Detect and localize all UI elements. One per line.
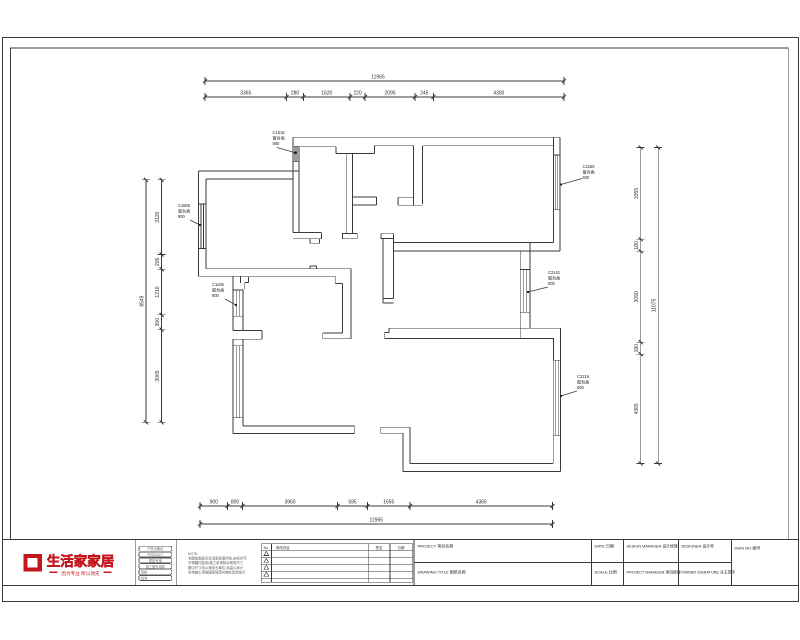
svg-text:不得翻印复制,施工前请核对现场尺寸: 不得翻印复制,施工前请核对现场尺寸 [188,560,244,565]
svg-text:1655: 1655 [383,500,394,506]
svg-text:DRAWING TITLE 图纸名称: DRAWING TITLE 图纸名称 [418,569,466,575]
svg-text:3355: 3355 [634,188,640,199]
svg-text:900: 900 [212,293,220,298]
svg-text:窗台高: 窗台高 [178,208,190,214]
svg-text:DESIGN MANAGER 设计经理: DESIGN MANAGER 设计经理 [627,544,678,549]
svg-text:本图纸版权归生活家家居所有,未经许可: 本图纸版权归生活家家居所有,未经许可 [188,556,247,561]
svg-text:PROJECT 项目名称: PROJECT 项目名称 [418,543,454,549]
svg-text:3365: 3365 [240,91,251,97]
svg-text:600: 600 [577,385,585,390]
svg-text:800: 800 [231,500,240,506]
svg-text:1620: 1620 [321,91,332,97]
svg-text:窗台高: 窗台高 [577,379,589,385]
svg-text:No.: No. [264,546,269,550]
svg-text:OWNER SIGNATURE 业主签字: OWNER SIGNATURE 业主签字 [682,570,736,575]
svg-text:595: 595 [348,500,357,506]
svg-text:C1106: C1106 [212,282,224,287]
svg-text:施工图专用章: 施工图专用章 [146,564,166,569]
svg-text:3960: 3960 [284,500,295,506]
svg-text:C1516: C1516 [273,130,286,135]
svg-text:900: 900 [273,141,281,146]
svg-text:205: 205 [155,257,161,266]
svg-text:4300: 4300 [493,91,504,97]
svg-text:日期: 日期 [398,545,405,550]
svg-text:11075: 11075 [652,299,658,313]
svg-text:1210: 1210 [155,286,161,297]
svg-text:280: 280 [291,91,300,97]
svg-text:3050: 3050 [634,291,640,302]
svg-text:因为专业 所以领先: 因为专业 所以领先 [61,570,99,577]
svg-text:产品合格证: 产品合格证 [147,546,164,551]
svg-text:600: 600 [583,175,591,180]
svg-text:窗台高: 窗台高 [212,287,224,293]
svg-text:SCALE 比例: SCALE 比例 [595,569,617,575]
svg-text:生活家家居: 生活家家居 [47,553,115,569]
svg-text:DWG.NO 图号: DWG.NO 图号 [735,545,761,551]
svg-text:180: 180 [634,344,640,353]
svg-text:900: 900 [178,214,186,219]
svg-text:C2216: C2216 [577,374,590,379]
svg-text:8549: 8549 [140,295,146,306]
svg-text:11965: 11965 [371,75,385,81]
svg-text:NOTE:: NOTE: [188,552,198,556]
svg-text:图中尺寸均以毫米为单位,标高以米计: 图中尺寸均以毫米为单位,标高以米计 [188,565,244,570]
svg-text:3120: 3120 [155,211,161,222]
svg-text:180: 180 [634,241,640,250]
svg-text:245: 245 [420,91,429,97]
svg-text:窗台高: 窗台高 [583,169,595,175]
svg-text:DESIGNER 设计师: DESIGNER 设计师 [682,544,714,549]
svg-text:DATE 日期: DATE 日期 [595,543,614,549]
svg-text:220: 220 [353,91,362,97]
svg-text:水电施工须按国家规范与物业配合执行: 水电施工须按国家规范与物业配合执行 [188,570,246,575]
svg-text:质检专用: 质检专用 [149,558,162,563]
svg-text:600: 600 [548,281,556,286]
svg-text:签名: 签名 [376,545,383,550]
svg-text:11965: 11965 [369,518,383,524]
svg-text:3065: 3065 [155,370,161,381]
svg-text:900: 900 [210,500,219,506]
svg-text:300: 300 [155,318,161,327]
svg-text:窗台高: 窗台高 [548,275,560,281]
svg-text:修改内容: 修改内容 [276,545,290,550]
svg-text:PRODUCT: PRODUCT [147,553,163,557]
svg-text:C2155: C2155 [583,164,596,169]
svg-text:PROJECT MANAGER 项目经理: PROJECT MANAGER 项目经理 [627,570,681,575]
svg-text:批准: 批准 [141,575,148,580]
svg-text:4365: 4365 [476,500,487,506]
svg-text:C2141: C2141 [548,270,561,275]
svg-text:4365: 4365 [634,403,640,414]
svg-text:C1806: C1806 [178,203,191,208]
svg-text:审核: 审核 [141,570,148,575]
svg-text:2095: 2095 [384,91,395,97]
svg-text:窗台高: 窗台高 [273,135,285,141]
